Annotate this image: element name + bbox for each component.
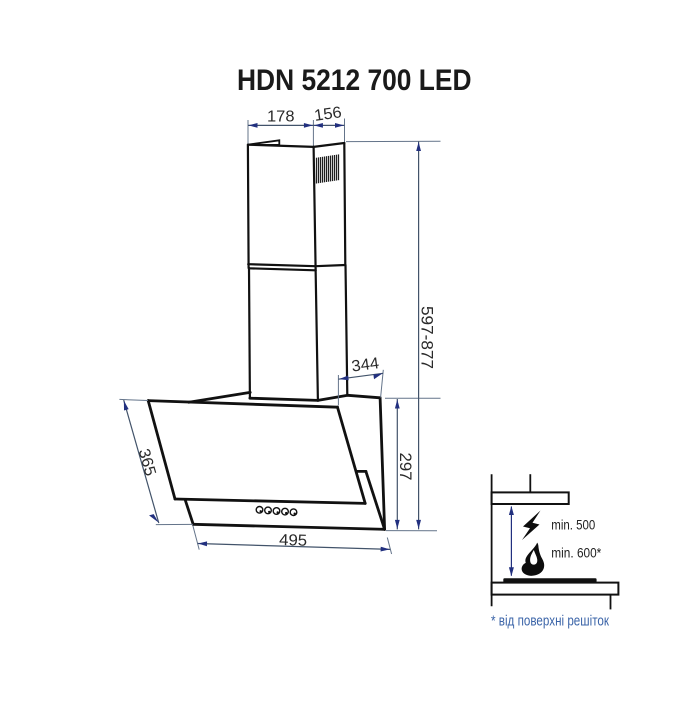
- svg-text:344: 344: [351, 355, 381, 375]
- svg-text:297: 297: [396, 453, 414, 481]
- svg-text:min. 500: min. 500: [551, 517, 595, 532]
- svg-text:495: 495: [279, 532, 308, 550]
- svg-text:* від поверхні решіток: * від поверхні решіток: [491, 614, 610, 630]
- svg-text:178: 178: [267, 109, 295, 126]
- svg-text:HDN 5212 700 LED: HDN 5212 700 LED: [237, 64, 472, 97]
- svg-text:597-877: 597-877: [418, 306, 436, 369]
- svg-text:min. 600*: min. 600*: [551, 546, 602, 561]
